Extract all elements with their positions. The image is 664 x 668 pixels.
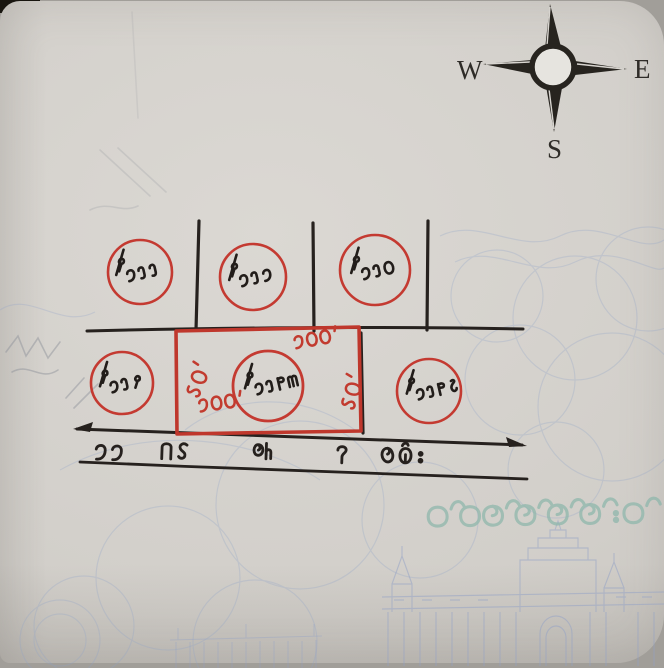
road-label-segment [337, 447, 346, 463]
dimension-left [184, 362, 210, 398]
compass-east-label: E [634, 54, 651, 84]
compass-west-label: W [457, 55, 483, 85]
plot-123-label [95, 356, 142, 396]
pencil-scribbles [6, 12, 166, 408]
plot-divider-line [313, 223, 314, 331]
plot-divider-line [427, 221, 428, 330]
building-watermark [382, 521, 664, 666]
compass-south-label: S [547, 134, 562, 164]
compass-hub [532, 46, 574, 88]
sketch-canvas: W E S [0, 0, 664, 668]
photographed-plot-sketch: { "compass": { "west": "W", "east": "E",… [0, 0, 664, 668]
security-pattern [0, 227, 664, 668]
plot-121 [220, 244, 286, 310]
road-label-segment [162, 443, 187, 459]
dimension-labels [184, 326, 363, 411]
plot-124-ka-label [240, 355, 298, 397]
plot-123 [91, 352, 153, 414]
watermark-text [428, 498, 661, 526]
road-arrowhead-west [73, 422, 93, 432]
plot-121-label [224, 248, 271, 289]
road-labels [96, 442, 423, 463]
compass-rose: W E S [457, 4, 651, 164]
plot-120 [340, 235, 410, 305]
plot-124-kha [397, 359, 461, 423]
plot-122 [108, 240, 172, 304]
road-arrowhead-east [506, 437, 527, 447]
road-edge-line-south [80, 462, 527, 479]
plot-120-label [346, 241, 394, 282]
road-label-segment [382, 442, 423, 463]
plot-124-ka [233, 351, 303, 421]
dimension-bottom [198, 391, 242, 412]
plot-divider-line [196, 221, 199, 330]
plot-124-kha-label [402, 362, 457, 402]
